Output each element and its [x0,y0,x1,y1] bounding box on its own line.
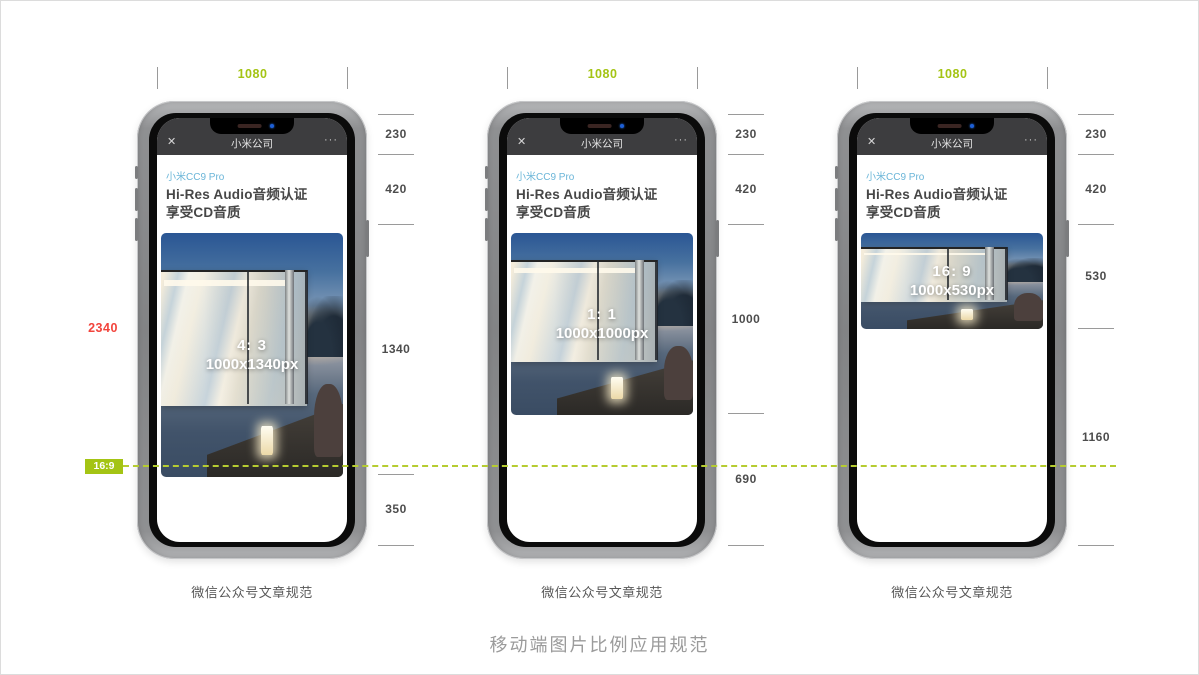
volume-down-button [835,218,838,241]
article-headline-line2: 享受CD音质 [166,204,338,222]
width-dimension-label: 1080 [857,67,1048,81]
wechat-navbar: ✕ 小米公司 ··· [857,133,1047,155]
ratio-16-9-guideline [123,465,1116,467]
dimension-tick [728,545,764,546]
more-icon[interactable]: ··· [1024,134,1038,146]
mute-switch [835,166,838,179]
image-dimension-overlay: 4: 3 1000x1340px [161,233,343,477]
segment-dimension-label: 230 [368,126,424,142]
ratio-16-9-badge: 16:9 [85,459,123,474]
dimension-tick [728,224,764,225]
phone-caption: 微信公众号文章规范 [837,582,1067,601]
phone-spec-group-16-9: 1080 ✕ 小米公司 ··· [834,1,1134,675]
phone-screen: ✕ 小米公司 ··· 小米CC9 Pro Hi-Res Audio音频认证 享受… [507,118,697,542]
dimension-tick [378,474,414,475]
image-dimension-overlay: 1: 1 1000x1000px [511,233,693,415]
segment-dimension-label: 230 [718,126,774,142]
segment-dimension-label: 1340 [368,341,424,357]
dimension-tick [1078,545,1114,546]
width-dimension-label: 1080 [157,67,348,81]
wechat-article-title: 小米公司 [857,136,1047,151]
image-size-label: 1000x1000px [556,325,649,342]
power-button [716,220,719,257]
segment-dimension-label: 420 [718,181,774,197]
phone-caption: 微信公众号文章规范 [487,582,717,601]
dimension-tick [378,154,414,155]
article-image[interactable]: 4: 3 1000x1340px [161,233,343,477]
dimension-tick [1078,224,1114,225]
wechat-navbar: ✕ 小米公司 ··· [157,133,347,155]
phone-mockup: ✕ 小米公司 ··· 小米CC9 Pro Hi-Res Audio音频认证 享受… [837,101,1067,559]
phone-screen: ✕ 小米公司 ··· 小米CC9 Pro Hi-Res Audio音频认证 享受… [157,118,347,542]
more-icon[interactable]: ··· [324,134,338,146]
page-title: 移动端图片比例应用规范 [1,631,1198,657]
dimension-tick [378,545,414,546]
speaker-grille [238,124,262,128]
notch [910,118,994,134]
article-content: 小米CC9 Pro Hi-Res Audio音频认证 享受CD音质 [157,155,347,477]
volume-up-button [135,188,138,211]
dimension-tick [728,154,764,155]
power-button [1066,220,1069,257]
front-camera [270,124,274,128]
product-name: 小米CC9 Pro [866,168,1038,183]
volume-up-button [835,188,838,211]
dimension-tick [728,413,764,414]
segment-dimension-label: 420 [368,181,424,197]
segment-dimension-label: 1000 [718,311,774,327]
wechat-header: ✕ 小米公司 ··· [507,118,697,155]
wechat-header: ✕ 小米公司 ··· [157,118,347,155]
phone-mockup: ✕ 小米公司 ··· 小米CC9 Pro Hi-Res Audio音频认证 享受… [137,101,367,559]
more-icon[interactable]: ··· [674,134,688,146]
phone-spec-group-1-1: 1080 ✕ 小米公司 ··· [484,1,784,675]
volume-up-button [485,188,488,211]
phone-mockup: ✕ 小米公司 ··· 小米CC9 Pro Hi-Res Audio音频认证 享受… [487,101,717,559]
product-name: 小米CC9 Pro [516,168,688,183]
speaker-grille [938,124,962,128]
front-camera [620,124,624,128]
segment-dimension-label: 420 [1068,181,1124,197]
dimension-tick [1078,114,1114,115]
screen-height-label: 2340 [79,321,127,335]
notch [560,118,644,134]
article-headline-line2: 享受CD音质 [516,204,688,222]
article-headline-line1: Hi-Res Audio音频认证 [516,186,688,204]
segment-dimension-label: 690 [718,471,774,487]
article-image[interactable]: 16: 9 1000x530px [861,233,1043,329]
phone-caption: 微信公众号文章规范 [137,582,367,601]
article-image[interactable]: 1: 1 1000x1000px [511,233,693,415]
article-content: 小米CC9 Pro Hi-Res Audio音频认证 享受CD音质 [857,155,1047,329]
power-button [366,220,369,257]
image-ratio-label: 1: 1 [587,306,617,323]
volume-down-button [135,218,138,241]
image-ratio-label: 16: 9 [932,263,971,280]
image-ratio-label: 4: 3 [237,337,267,354]
dimension-tick [728,114,764,115]
wechat-article-title: 小米公司 [507,136,697,151]
article-content: 小米CC9 Pro Hi-Res Audio音频认证 享受CD音质 [507,155,697,415]
article-headline-line1: Hi-Res Audio音频认证 [166,186,338,204]
article-headline-line2: 享受CD音质 [866,204,1038,222]
image-dimension-overlay: 16: 9 1000x530px [861,233,1043,329]
dimension-tick [1078,328,1114,329]
notch [210,118,294,134]
segment-dimension-label: 350 [368,501,424,517]
segment-dimension-label: 530 [1068,268,1124,284]
image-size-label: 1000x530px [910,282,994,299]
wechat-article-title: 小米公司 [157,136,347,151]
spec-canvas: 1080 ✕ 小米公司 ··· [0,0,1199,675]
mute-switch [485,166,488,179]
phone-screen: ✕ 小米公司 ··· 小米CC9 Pro Hi-Res Audio音频认证 享受… [857,118,1047,542]
speaker-grille [588,124,612,128]
width-dimension-label: 1080 [507,67,698,81]
product-name: 小米CC9 Pro [166,168,338,183]
mute-switch [135,166,138,179]
segment-dimension-label: 1160 [1068,429,1124,445]
phone-spec-group-4-3: 1080 ✕ 小米公司 ··· [134,1,434,675]
volume-down-button [485,218,488,241]
front-camera [970,124,974,128]
segment-dimension-label: 230 [1068,126,1124,142]
image-size-label: 1000x1340px [206,356,299,373]
wechat-navbar: ✕ 小米公司 ··· [507,133,697,155]
wechat-header: ✕ 小米公司 ··· [857,118,1047,155]
dimension-tick [378,224,414,225]
article-headline-line1: Hi-Res Audio音频认证 [866,186,1038,204]
dimension-tick [378,114,414,115]
dimension-tick [1078,154,1114,155]
